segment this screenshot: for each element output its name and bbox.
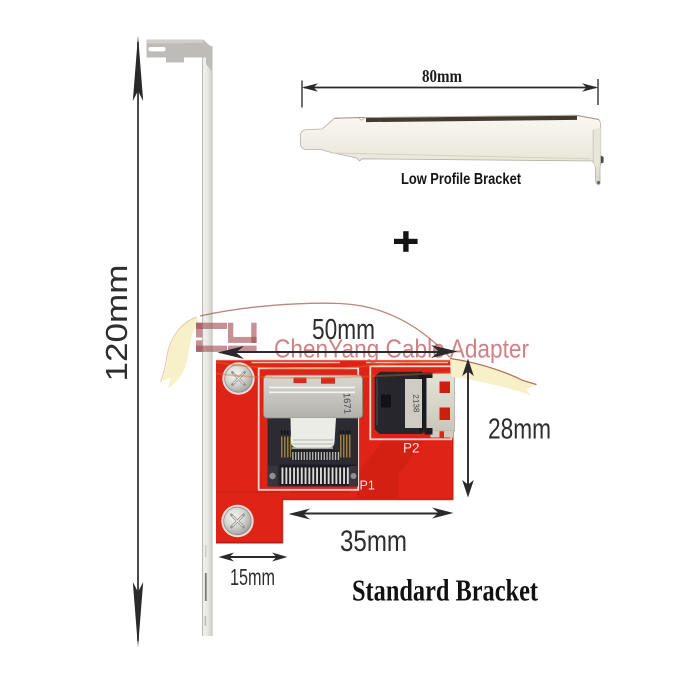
svg-text:Low Profile Bracket: Low Profile Bracket: [401, 171, 522, 188]
svg-text:50mm: 50mm: [312, 314, 375, 346]
svg-text:Standard Bracket: Standard Bracket: [352, 573, 539, 608]
svg-text:120mm: 120mm: [100, 265, 134, 382]
svg-text:15mm: 15mm: [230, 564, 275, 590]
svg-text:1671: 1671: [340, 393, 352, 415]
svg-text:P1: P1: [360, 479, 375, 493]
svg-text:80mm: 80mm: [422, 66, 462, 86]
svg-text:35mm: 35mm: [340, 525, 407, 558]
svg-text:2138: 2138: [411, 394, 421, 413]
svg-text:28mm: 28mm: [488, 414, 551, 446]
svg-text:P2: P2: [403, 441, 420, 456]
